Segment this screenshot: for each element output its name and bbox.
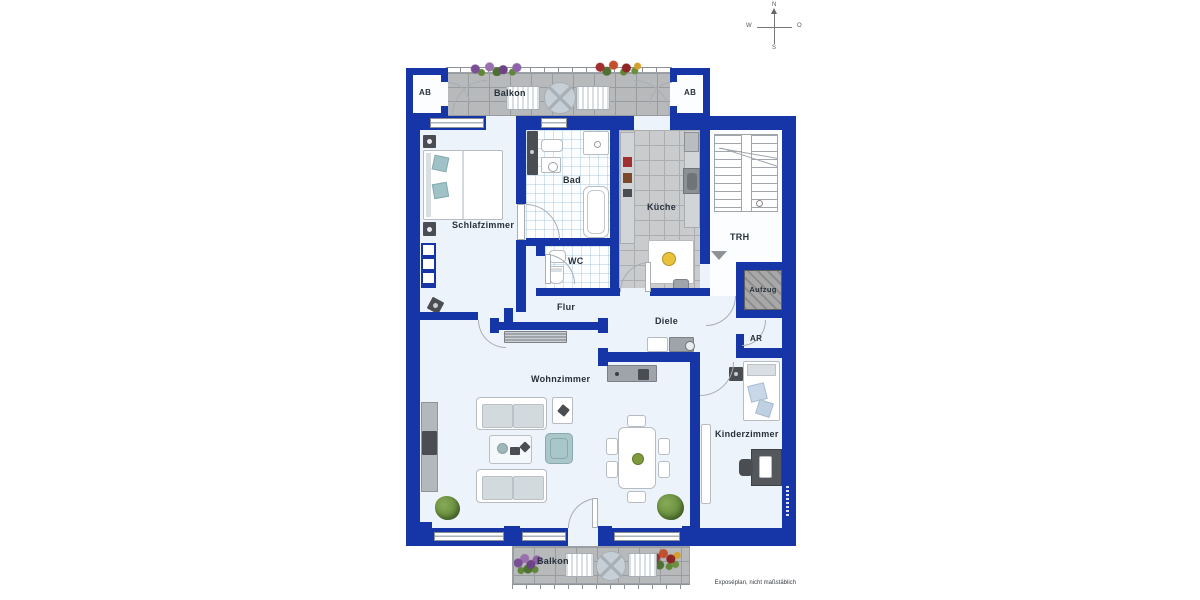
balkon-bottom-label: Balkon xyxy=(537,557,569,566)
tv-icon xyxy=(638,369,649,380)
kitchen-sink xyxy=(683,168,700,194)
kinderzimmer-label: Kinderzimmer xyxy=(715,430,779,439)
wall xyxy=(536,288,620,296)
shower xyxy=(583,131,609,155)
kitchen-item xyxy=(623,173,632,183)
wall xyxy=(736,348,782,358)
dining-chair xyxy=(627,415,646,427)
bath-cabinet xyxy=(527,131,538,175)
wall-post xyxy=(682,526,697,546)
compass-crossbar-icon xyxy=(757,27,792,28)
kueche-label: Küche xyxy=(647,203,676,212)
flur-label: Flur xyxy=(557,303,575,312)
drain-icon xyxy=(594,141,601,148)
wardrobe xyxy=(701,424,711,504)
wall xyxy=(406,116,420,546)
dining-chair xyxy=(658,461,670,478)
bathtub xyxy=(583,186,609,238)
window xyxy=(614,532,680,541)
ab-right-label: AB xyxy=(684,89,696,97)
wall xyxy=(610,130,619,290)
fridge xyxy=(684,132,699,152)
stool-dot-icon xyxy=(734,372,738,376)
washing-machine xyxy=(541,157,561,173)
book-icon xyxy=(510,447,520,455)
window xyxy=(541,118,567,128)
compass-east-label: O xyxy=(797,23,802,29)
compass: N W O S xyxy=(746,2,804,52)
wall xyxy=(420,312,478,320)
headboard xyxy=(426,153,431,217)
cushion-deco xyxy=(557,404,570,417)
sofa-cushion xyxy=(513,476,544,500)
potted-plant xyxy=(657,494,684,520)
wall xyxy=(700,130,710,264)
coffee-table xyxy=(489,435,532,464)
pillow xyxy=(432,182,449,199)
wall xyxy=(497,322,600,330)
washer-drum-icon xyxy=(548,162,558,172)
bad-label: Bad xyxy=(563,176,581,185)
lamp-icon xyxy=(427,139,432,144)
speaker-dot-icon xyxy=(432,302,439,309)
dryer-door-icon xyxy=(685,341,695,351)
bowl-icon xyxy=(497,443,508,454)
bathtub-inner xyxy=(587,190,605,234)
sideboard xyxy=(504,331,567,343)
kitchen-table xyxy=(648,240,694,284)
ab-left-door-gap xyxy=(440,82,448,106)
nightstand xyxy=(423,135,436,148)
stair-post-icon xyxy=(756,200,763,207)
window xyxy=(430,118,484,128)
wall xyxy=(782,116,796,546)
dining-chair xyxy=(658,438,670,455)
balcony-table xyxy=(544,82,576,114)
armchair-seat xyxy=(550,438,568,459)
fruit-plate-icon xyxy=(662,252,676,266)
sofa-cushion xyxy=(482,476,513,500)
nightstand xyxy=(423,222,436,236)
wall-unit-tv xyxy=(422,431,437,455)
deco-icon xyxy=(519,441,530,452)
wall-post xyxy=(504,526,520,546)
wall xyxy=(516,240,526,312)
potted-plant xyxy=(435,496,460,520)
door-leaf xyxy=(517,204,525,240)
wall xyxy=(406,522,432,546)
door-leaf xyxy=(645,262,651,292)
door-leaf xyxy=(592,498,598,528)
trh-corridor-floor xyxy=(710,264,736,296)
ab-left-label: AB xyxy=(419,89,431,97)
compass-west-label: W xyxy=(746,23,752,29)
wall xyxy=(690,352,700,528)
kitchen-item xyxy=(623,189,632,197)
balcony-bench xyxy=(576,86,610,110)
floorplan-canvas: Aufzug Balkon AB AB Schlafzimmer Bad Küc… xyxy=(0,0,1200,600)
diele-label: Diele xyxy=(655,317,678,326)
knob-icon xyxy=(615,372,619,376)
compass-needle-icon xyxy=(774,12,775,44)
laptop-icon xyxy=(759,456,772,478)
entrance-arrow-icon xyxy=(711,251,727,260)
door-opening xyxy=(486,116,516,130)
balkon-top-label: Balkon xyxy=(494,89,526,98)
dresser xyxy=(647,337,668,352)
child-bed xyxy=(743,361,780,421)
sofa xyxy=(476,469,547,503)
sofa-cushion xyxy=(482,404,513,428)
compass-south-label: S xyxy=(772,45,776,51)
compass-arrow-icon xyxy=(771,8,777,14)
wall xyxy=(650,288,710,296)
wc-label: WC xyxy=(568,257,584,266)
wall xyxy=(736,310,782,318)
wall-watermark xyxy=(786,486,789,516)
plant-bowl-icon xyxy=(632,453,644,465)
washbasin xyxy=(541,139,563,152)
pillow xyxy=(432,155,450,173)
dining-chair xyxy=(606,461,618,478)
flower-box xyxy=(466,62,528,76)
window xyxy=(522,532,566,541)
balcony-railing xyxy=(512,584,690,589)
tv-lowboard xyxy=(607,365,657,382)
wall xyxy=(516,130,526,204)
radiator xyxy=(421,243,436,288)
door-opening xyxy=(568,528,598,546)
stove-icon xyxy=(623,157,632,167)
sofa-cushion xyxy=(513,404,544,428)
dining-chair xyxy=(627,491,646,503)
window xyxy=(434,532,504,541)
kitchen-counter-left xyxy=(620,132,635,244)
stair-stringer xyxy=(741,134,752,212)
door-leaf xyxy=(545,254,551,284)
wall xyxy=(598,348,608,366)
flower-box xyxy=(590,60,646,76)
trh-label: TRH xyxy=(730,233,749,242)
ar-label: AR xyxy=(750,335,762,343)
wall xyxy=(606,352,690,362)
armchair xyxy=(545,433,573,464)
desk-chair xyxy=(739,459,753,476)
wall-unit xyxy=(421,402,438,492)
balcony-table xyxy=(596,551,626,581)
aufzug-label: Aufzug xyxy=(749,286,776,294)
desk xyxy=(751,449,782,486)
dining-chair xyxy=(606,438,618,455)
balcony-bench xyxy=(565,553,594,577)
lamp-icon xyxy=(427,227,432,232)
plan-caption: Exposéplan, nicht maßstäblich xyxy=(710,580,796,586)
wall xyxy=(598,318,608,333)
wohnzimmer-label: Wohnzimmer xyxy=(531,375,590,384)
side-chair xyxy=(552,397,573,424)
sofa xyxy=(476,397,547,430)
dining-table xyxy=(618,427,656,489)
schlafzimmer-label: Schlafzimmer xyxy=(452,221,514,230)
cabinet-knob-icon xyxy=(530,150,534,154)
wall-post xyxy=(598,526,612,546)
sink-basin-icon xyxy=(687,173,697,190)
washer-dryer xyxy=(669,337,694,352)
balcony-bench xyxy=(628,553,657,577)
wall xyxy=(536,246,545,256)
blanket xyxy=(755,399,774,418)
pillow xyxy=(747,364,776,376)
door-opening xyxy=(634,116,670,130)
elevator: Aufzug xyxy=(744,270,782,310)
